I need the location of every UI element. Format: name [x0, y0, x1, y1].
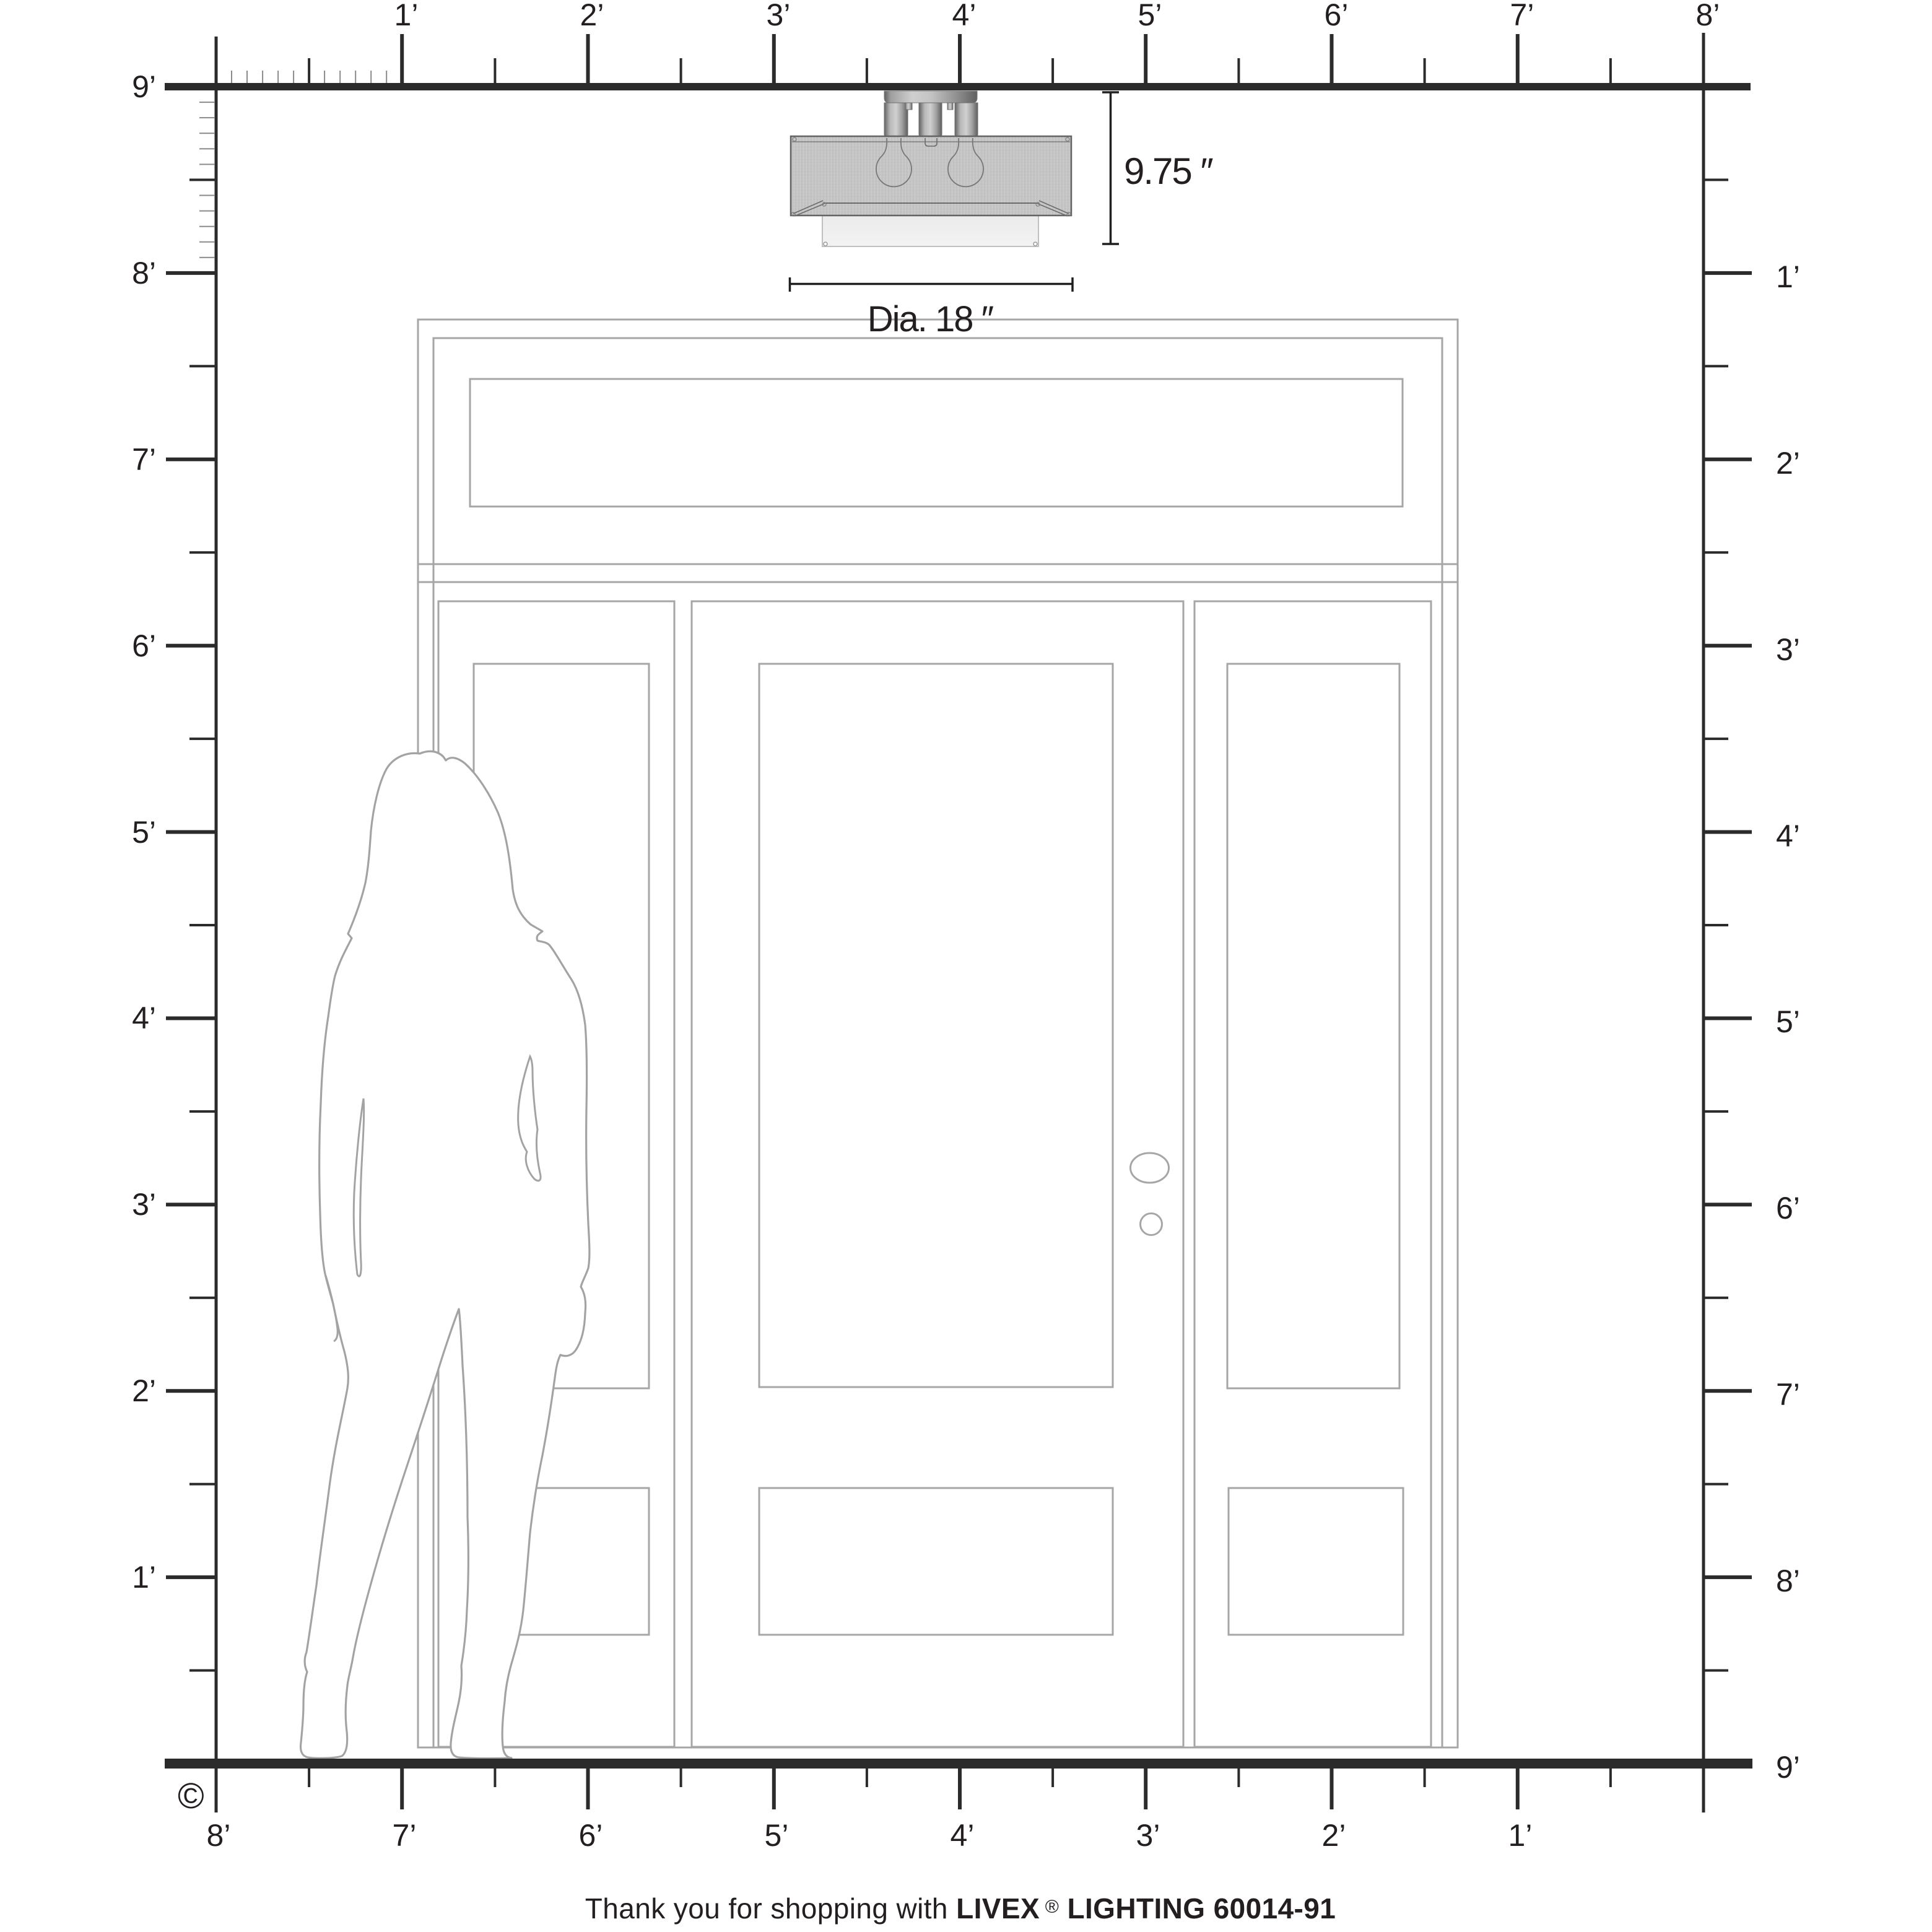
svg-text:4’: 4’	[1776, 819, 1800, 853]
svg-text:6’: 6’	[1325, 0, 1349, 32]
svg-text:9.75 ″: 9.75 ″	[1124, 150, 1213, 192]
svg-text:6’: 6’	[1776, 1191, 1800, 1225]
svg-text:3’: 3’	[767, 0, 791, 32]
svg-text:6’: 6’	[579, 1818, 603, 1853]
svg-text:Thank you for shopping with LI: Thank you for shopping with LIVEX ® LIGH…	[585, 1892, 1336, 1925]
svg-text:7’: 7’	[132, 442, 156, 477]
svg-text:6’: 6’	[132, 629, 156, 663]
svg-text:7’: 7’	[393, 1818, 417, 1853]
svg-text:8’: 8’	[132, 256, 156, 290]
svg-text:1’: 1’	[1508, 1818, 1533, 1853]
svg-text:Dia. 18 ″: Dia. 18 ″	[868, 299, 994, 339]
svg-text:1’: 1’	[132, 1560, 156, 1595]
svg-text:8’: 8’	[1776, 1564, 1800, 1598]
svg-text:5’: 5’	[1776, 1004, 1800, 1039]
svg-text:2’: 2’	[1322, 1818, 1346, 1853]
svg-text:9’: 9’	[132, 69, 156, 104]
svg-text:3’: 3’	[1136, 1818, 1160, 1853]
svg-text:4’: 4’	[952, 0, 977, 32]
svg-text:5’: 5’	[132, 815, 156, 850]
svg-text:3’: 3’	[132, 1187, 156, 1222]
svg-text:8’: 8’	[1696, 0, 1720, 32]
svg-text:4’: 4’	[132, 1001, 156, 1035]
svg-text:2’: 2’	[1776, 446, 1800, 481]
svg-text:1’: 1’	[394, 0, 419, 32]
svg-text:2’: 2’	[132, 1373, 156, 1408]
svg-text:©: ©	[178, 1776, 204, 1816]
svg-text:7’: 7’	[1776, 1377, 1800, 1412]
svg-text:9’: 9’	[1776, 1750, 1800, 1785]
svg-text:7’: 7’	[1510, 0, 1534, 32]
svg-text:4’: 4’	[951, 1818, 975, 1853]
svg-text:5’: 5’	[765, 1818, 789, 1853]
svg-text:8’: 8’	[207, 1818, 231, 1853]
svg-text:5’: 5’	[1138, 0, 1162, 32]
svg-text:2’: 2’	[580, 0, 604, 32]
svg-text:1’: 1’	[1776, 259, 1800, 294]
svg-text:3’: 3’	[1776, 632, 1800, 667]
